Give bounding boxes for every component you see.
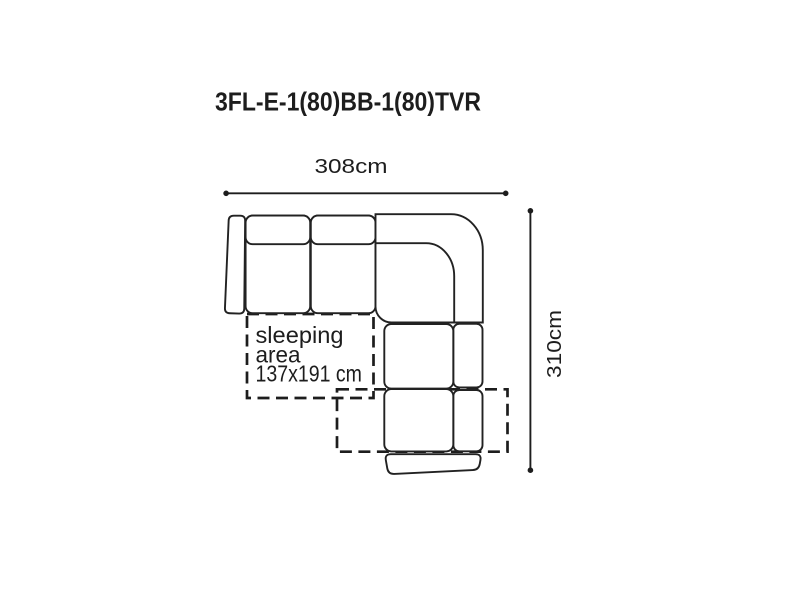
svg-text:3FL-E-1(80)BB-1(80)TVR: 3FL-E-1(80)BB-1(80)TVR [215, 87, 481, 117]
svg-text:308cm: 308cm [315, 156, 388, 178]
svg-text:310cm: 310cm [544, 310, 566, 378]
svg-text:137x191 cm: 137x191 cm [256, 361, 362, 387]
